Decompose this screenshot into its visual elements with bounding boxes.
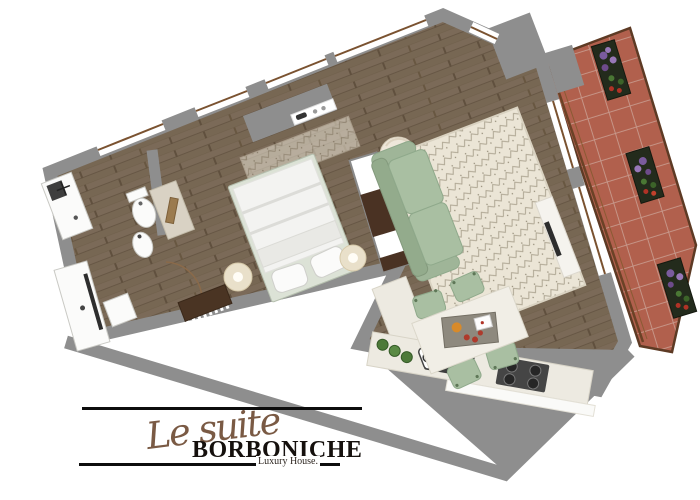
floor-lamp-icon [340,245,366,271]
floorplan-svg [0,0,700,500]
floorplan-image [0,0,700,500]
floor-lamp-icon [224,263,252,291]
